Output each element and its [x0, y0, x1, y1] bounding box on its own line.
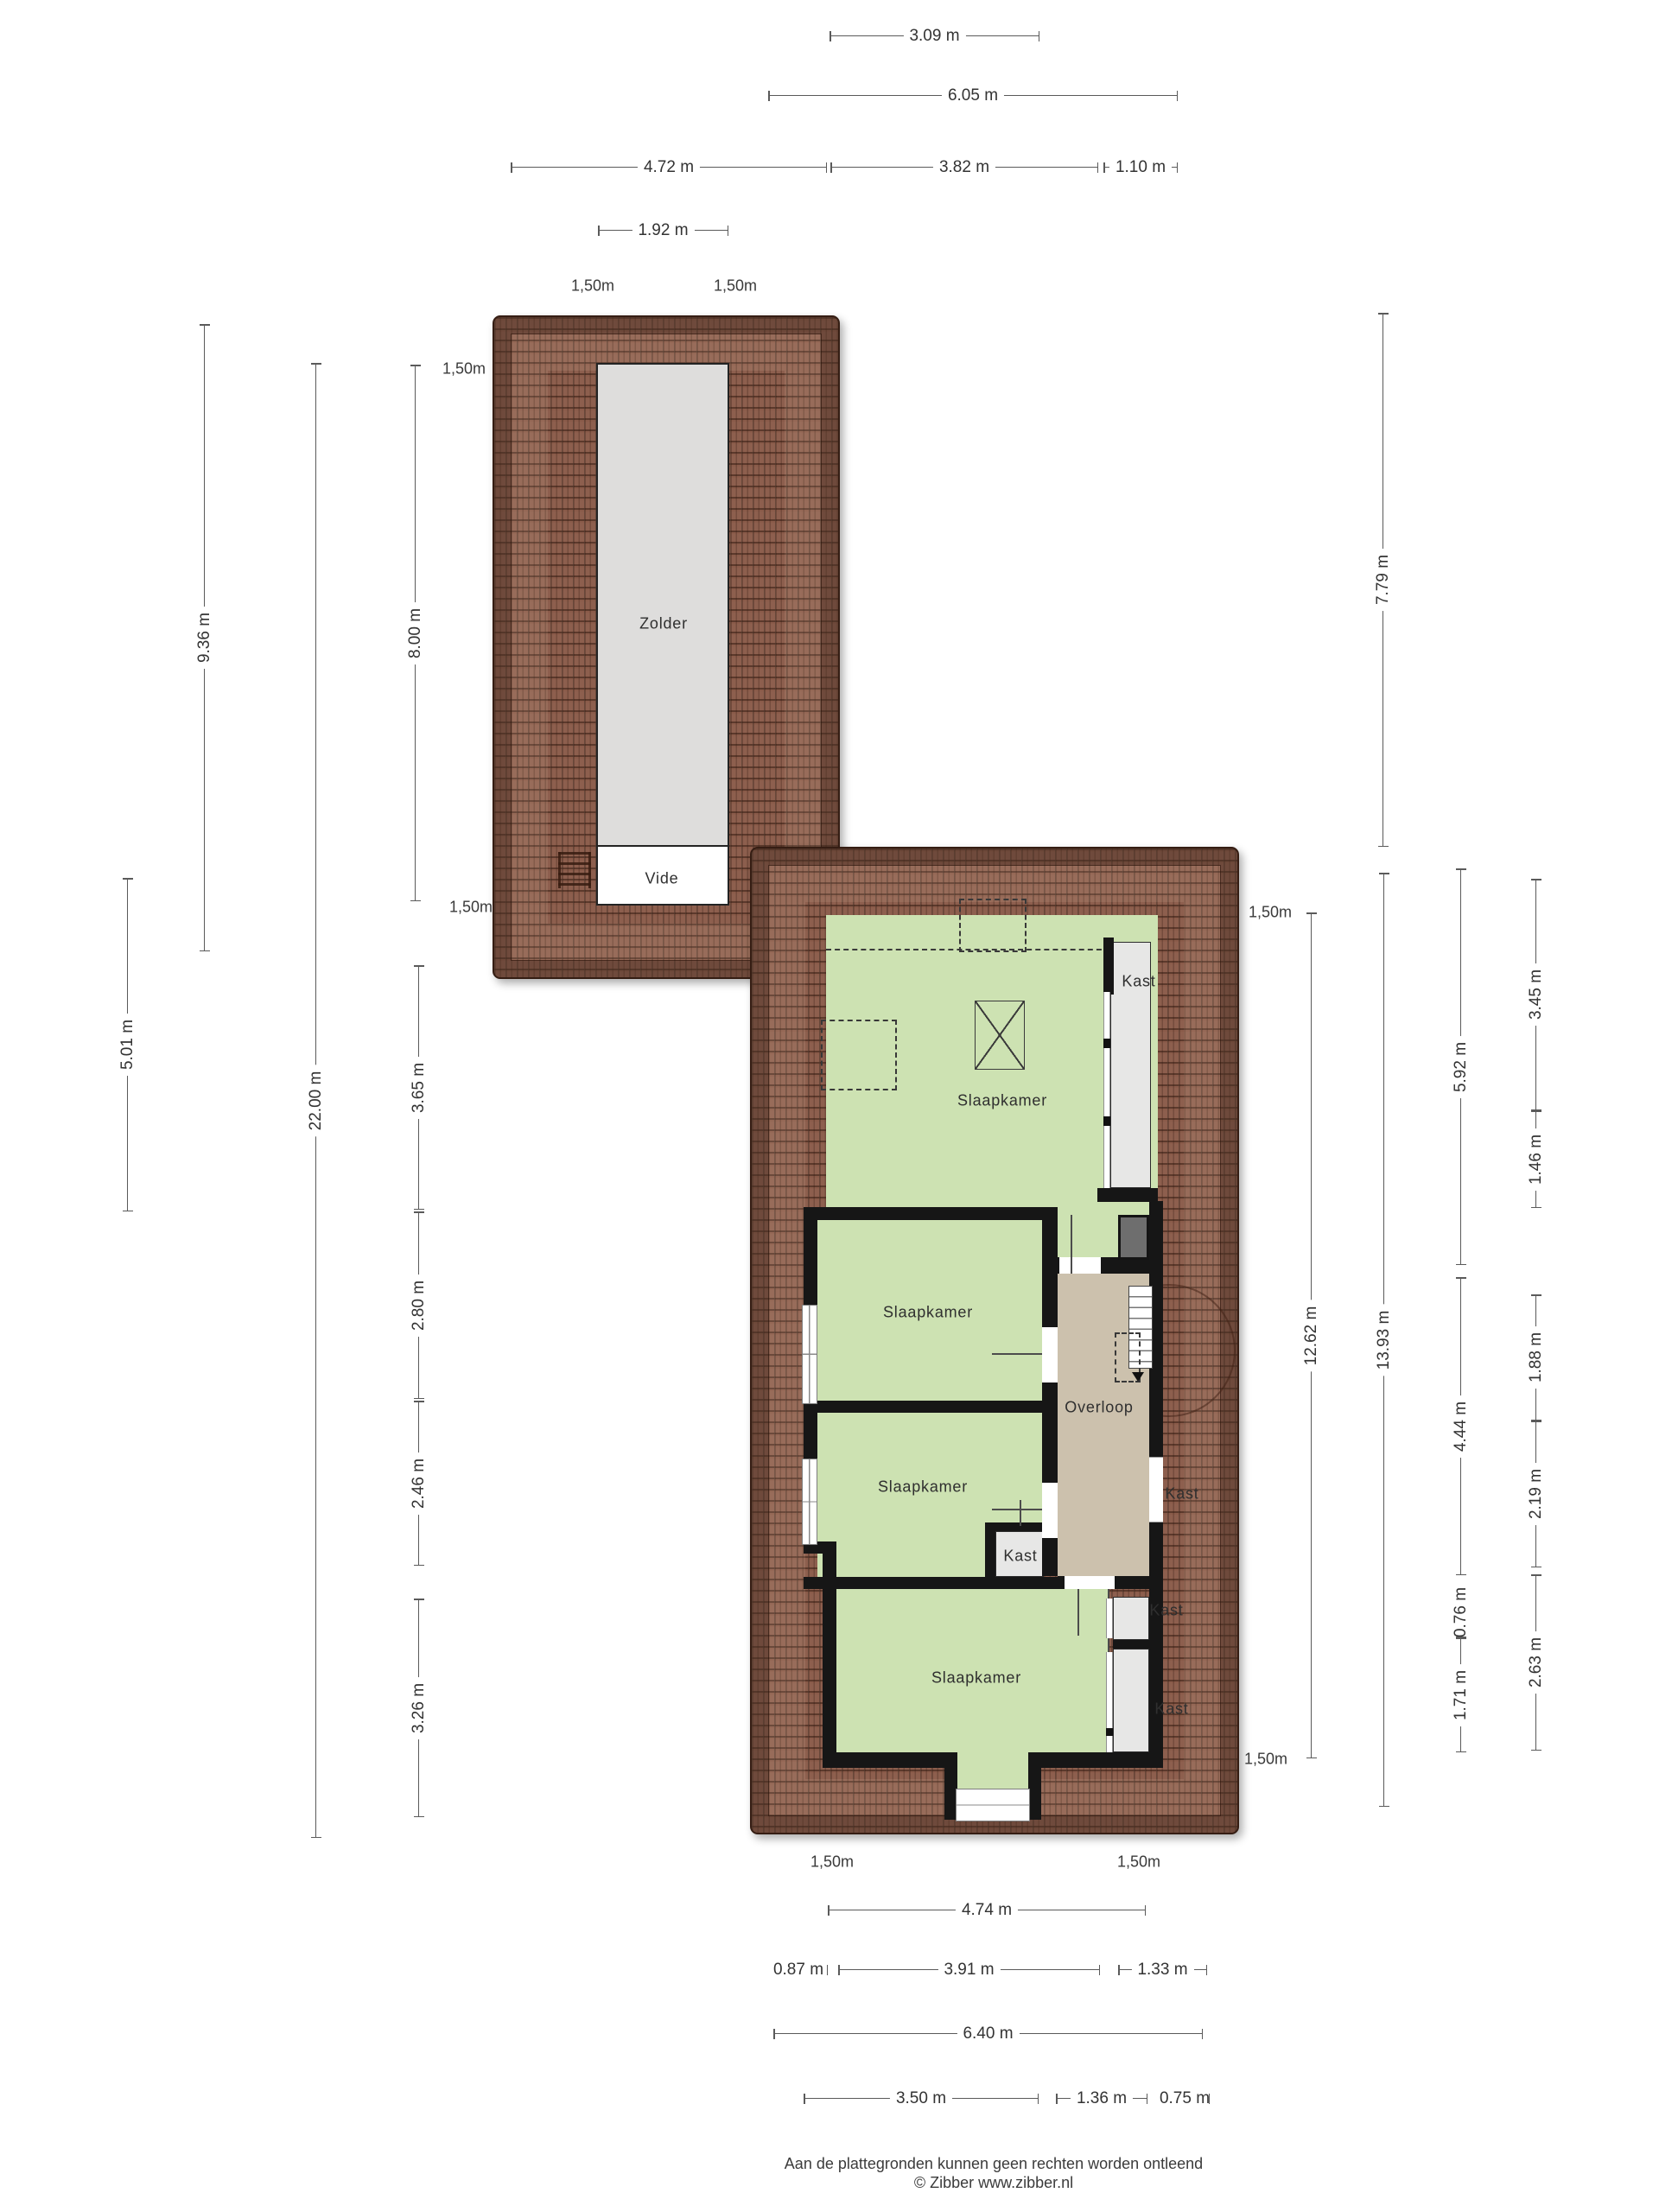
- dimension-label: 1.10 m: [1109, 158, 1172, 177]
- footer-credit: © Zibber www.zibber.nl: [0, 2174, 1659, 2192]
- room-label-slaapkamer-1: Slaapkamer: [957, 1092, 1047, 1110]
- footer-line1: Aan de plattegronden kunnen geen rechten…: [785, 2155, 1203, 2172]
- closet-5: [1113, 1649, 1149, 1752]
- height-marker: 1,50m: [1244, 1751, 1287, 1769]
- dimension-vertical: 2.63 m: [1535, 1574, 1536, 1751]
- dimension-label: 1.92 m: [632, 221, 694, 240]
- dimension-label: 1.88 m: [1527, 1326, 1546, 1389]
- height-marker: 1,50m: [1249, 904, 1292, 922]
- sliding-door-stop: [1103, 1116, 1110, 1126]
- dimension-vertical: 5.92 m: [1460, 868, 1461, 1265]
- dimension-label: 0.87 m: [767, 1961, 829, 1980]
- dimension-label: 2.80 m: [410, 1274, 429, 1336]
- door-opening: [1065, 1576, 1115, 1589]
- dimension-label: 1.46 m: [1527, 1128, 1546, 1190]
- room-label-kast-3: Kast: [1165, 1485, 1198, 1503]
- wall: [1097, 1188, 1158, 1202]
- footer-line2: © Zibber www.zibber.nl: [914, 2174, 1073, 2191]
- height-marker: 1,50m: [1117, 1853, 1160, 1872]
- door-leaf: [1020, 1500, 1021, 1526]
- door-opening: [1042, 1483, 1058, 1538]
- dimension-vertical: 2.80 m: [418, 1211, 419, 1399]
- dimension-horizontal: 0.75 m: [1160, 2098, 1210, 2099]
- dimension-label: 3.91 m: [938, 1961, 1000, 1980]
- dimension-label: 3.45 m: [1527, 963, 1546, 1026]
- dimension-vertical: 2.19 m: [1535, 1421, 1536, 1567]
- wall-bottom-left: [823, 1752, 944, 1768]
- window: [956, 1789, 1030, 1821]
- room-label-kast-1: Kast: [1122, 973, 1155, 991]
- dimension-horizontal: 0.87 m: [769, 1969, 828, 1970]
- dimension-horizontal: 1.36 m: [1056, 2098, 1147, 2099]
- dimension-vertical: 3.45 m: [1535, 879, 1536, 1110]
- entry-stub-right: [1028, 1752, 1041, 1820]
- wall: [1113, 1640, 1163, 1649]
- door-leaf: [992, 1509, 1042, 1510]
- floorplan-canvas: 3.09 m6.05 m4.72 m3.82 m1.10 m1.92 m4.74…: [0, 0, 1659, 2212]
- dimension-vertical: 9.36 m: [204, 324, 205, 951]
- room-label-zolder: Zolder: [639, 615, 688, 633]
- sliding-door-stop: [1103, 1039, 1110, 1048]
- dimension-label: 6.05 m: [942, 86, 1004, 105]
- sliding-door: [1106, 1652, 1113, 1752]
- dormer-dashed-box-left: [821, 1020, 897, 1090]
- wall: [804, 1207, 1058, 1220]
- dimension-vertical: 1.71 m: [1460, 1637, 1461, 1752]
- wall: [1103, 938, 1114, 995]
- dimension-label: 3.65 m: [410, 1056, 429, 1118]
- dimension-vertical: 5.01 m: [127, 878, 128, 1211]
- dimension-label: 1.71 m: [1452, 1663, 1471, 1726]
- room-label-kast-5: Kast: [1154, 1700, 1188, 1719]
- height-marker: 1,50m: [449, 899, 493, 917]
- dimension-label: 4.74 m: [956, 1901, 1018, 1920]
- dimension-label: 13.93 m: [1375, 1304, 1394, 1376]
- door-leaf: [992, 1353, 1042, 1355]
- shaft: [1118, 1215, 1149, 1260]
- dimension-vertical: 4.44 m: [1460, 1277, 1461, 1575]
- dimension-horizontal: 3.09 m: [829, 35, 1039, 36]
- wall: [804, 1577, 1058, 1589]
- dimension-label: 6.40 m: [957, 2024, 1019, 2044]
- dimension-label: 2.63 m: [1527, 1631, 1546, 1694]
- dimension-label: 9.36 m: [195, 607, 214, 669]
- wall: [1058, 1576, 1065, 1589]
- window: [802, 1305, 817, 1404]
- stairs-arc-area: [1163, 1279, 1237, 1452]
- dimension-label: 8.00 m: [406, 601, 425, 664]
- dimension-label: 3.50 m: [890, 2089, 952, 2108]
- room-label-overloop: Overloop: [1065, 1399, 1133, 1417]
- closet-door-opening: [1149, 1457, 1163, 1522]
- dimension-vertical: 22.00 m: [315, 363, 316, 1838]
- dimension-vertical: 1.46 m: [1535, 1110, 1536, 1208]
- closet-4: [1113, 1597, 1149, 1640]
- dimension-horizontal: 1.10 m: [1103, 167, 1178, 168]
- dimension-horizontal: 1.33 m: [1118, 1969, 1207, 1970]
- room-label-vide: Vide: [645, 870, 679, 888]
- dimension-horizontal: 4.74 m: [828, 1910, 1146, 1910]
- dimension-horizontal: 3.50 m: [804, 2098, 1039, 2099]
- dimension-vertical: 3.65 m: [418, 965, 419, 1210]
- door-opening: [1042, 1327, 1058, 1382]
- dimension-label: 7.79 m: [1374, 549, 1393, 611]
- door-leaf: [1071, 1215, 1072, 1274]
- dimension-label: 22.00 m: [307, 1065, 326, 1136]
- door-leaf: [1077, 1589, 1079, 1636]
- dimension-label: 1.33 m: [1131, 1961, 1193, 1980]
- dimension-horizontal: 1.92 m: [598, 230, 728, 231]
- dimension-label: 5.01 m: [118, 1014, 137, 1076]
- wall: [985, 1522, 995, 1577]
- room-label-kast-2: Kast: [1003, 1548, 1037, 1566]
- door-opening: [1059, 1257, 1101, 1274]
- dormer-dashed-box-top: [959, 899, 1027, 952]
- dimension-label: 0.75 m: [1154, 2089, 1216, 2108]
- stairs-arc: [1163, 1284, 1236, 1417]
- dimension-vertical: 1.88 m: [1535, 1294, 1536, 1421]
- room-label-kast-4: Kast: [1149, 1602, 1183, 1620]
- dimension-horizontal: 3.91 m: [838, 1969, 1100, 1970]
- footer-disclaimer: Aan de plattegronden kunnen geen rechten…: [0, 2155, 1659, 2173]
- dimension-label: 3.26 m: [410, 1676, 429, 1738]
- stairs-direction-arrow-icon: [1132, 1372, 1144, 1382]
- window: [802, 1459, 817, 1545]
- dimension-label: 0.76 m: [1452, 1580, 1471, 1643]
- room-label-slaapkamer-4: Slaapkamer: [931, 1669, 1021, 1688]
- dimension-vertical: 3.26 m: [418, 1599, 419, 1817]
- attic-ladder-icon: [558, 852, 591, 888]
- dimension-vertical: 12.62 m: [1311, 912, 1312, 1758]
- sliding-door-stop: [1106, 1728, 1113, 1736]
- dimension-label: 2.46 m: [410, 1452, 429, 1514]
- dimension-label: 5.92 m: [1452, 1035, 1471, 1097]
- wall-bottom-right: [1041, 1752, 1163, 1768]
- dimension-horizontal: 3.82 m: [830, 167, 1098, 168]
- dimension-label: 12.62 m: [1302, 1300, 1321, 1371]
- wall: [1149, 1215, 1163, 1260]
- dimension-label: 4.72 m: [638, 158, 700, 177]
- dimension-horizontal: 6.40 m: [773, 2033, 1203, 2034]
- height-marker: 1,50m: [810, 1853, 854, 1872]
- dimension-label: 4.44 m: [1452, 1395, 1471, 1457]
- dimension-vertical: 7.79 m: [1382, 313, 1383, 847]
- height-marker: 1,50m: [714, 277, 757, 296]
- dimension-label: 3.82 m: [933, 158, 995, 177]
- skylight-icon: [975, 1001, 1025, 1070]
- dimension-label: 2.19 m: [1527, 1463, 1546, 1525]
- room-label-slaapkamer-3: Slaapkamer: [878, 1478, 968, 1497]
- room-label-slaapkamer-2: Slaapkamer: [883, 1304, 973, 1322]
- wall: [1101, 1257, 1118, 1274]
- sliding-door: [1103, 992, 1110, 1188]
- height-marker: 1,50m: [571, 277, 614, 296]
- entry-niche-floor: [957, 1752, 1028, 1789]
- dimension-label: 3.09 m: [903, 27, 965, 46]
- dimension-vertical: 2.46 m: [418, 1401, 419, 1566]
- height-marker: 1,50m: [442, 360, 486, 378]
- dimension-horizontal: 4.72 m: [511, 167, 827, 168]
- dimension-horizontal: 6.05 m: [768, 95, 1178, 96]
- wall: [804, 1401, 1042, 1413]
- dimension-vertical: 8.00 m: [415, 365, 416, 901]
- dimension-label: 1.36 m: [1071, 2089, 1133, 2108]
- dimension-vertical: 13.93 m: [1383, 873, 1384, 1807]
- sliding-door: [1106, 1599, 1113, 1638]
- attic-room-zolder: [596, 363, 729, 847]
- dimension-vertical: 0.76 m: [1460, 1586, 1461, 1637]
